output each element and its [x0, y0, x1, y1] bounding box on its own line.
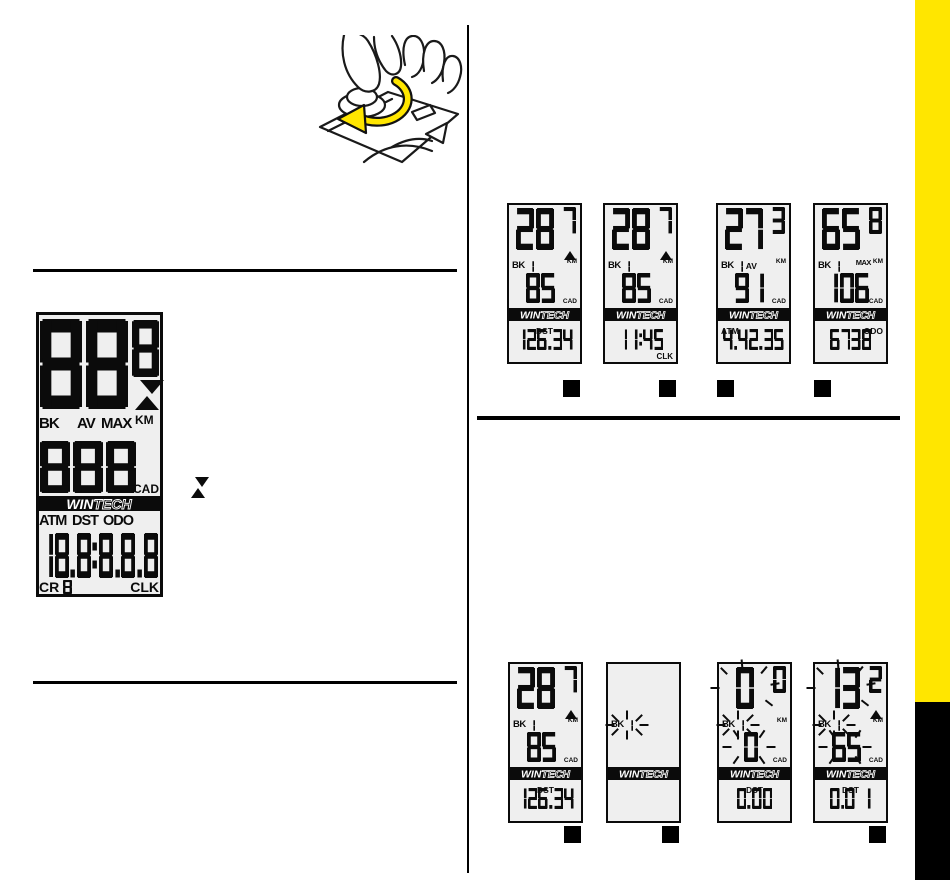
- blink-tick: [767, 746, 776, 748]
- corner-label: CLK: [657, 353, 673, 361]
- cadence-label: CAD: [772, 299, 786, 306]
- cadence-digits: [513, 273, 568, 303]
- finger-3: [443, 56, 462, 93]
- blink-tick: [807, 687, 816, 689]
- unit-label: KM: [663, 259, 673, 266]
- blink-tick: [746, 714, 754, 722]
- brand-win: WIN: [520, 310, 541, 322]
- blink-tick: [626, 731, 628, 740]
- brand-band: WINTECH: [815, 308, 886, 321]
- blink-tick: [717, 724, 726, 726]
- svg-text:WINTECH: WINTECH: [826, 769, 875, 781]
- brand-tech: TECH: [94, 496, 133, 511]
- speed-digits: [40, 319, 128, 409]
- right-rule: [477, 416, 900, 420]
- top-display-2: BKKMCADWINTECHCLK: [603, 203, 678, 364]
- bike-label: BK: [39, 416, 59, 431]
- button-press-square: [563, 380, 580, 397]
- bottom-display-2: BKWINTECH: [606, 662, 681, 823]
- clock-label: CLK: [130, 580, 159, 594]
- svg-text:WINTECH: WINTECH: [616, 310, 665, 322]
- unit-group: KM: [567, 259, 577, 266]
- brand-tech: TECH: [639, 769, 668, 781]
- brand-win: WIN: [616, 310, 637, 322]
- button-press-square: [659, 380, 676, 397]
- toggle-up-triangle: [191, 488, 205, 498]
- bottom-digits: [511, 329, 578, 350]
- blink-tick: [737, 711, 739, 720]
- cadence-label: CAD: [659, 299, 673, 306]
- column-divider: [467, 25, 469, 873]
- brand-win: WIN: [826, 310, 847, 322]
- blink-tick: [723, 746, 732, 748]
- brand-band: WINTECH: [605, 308, 676, 321]
- button-press-square: [869, 826, 886, 843]
- brand-band: WINTECH: [815, 767, 886, 780]
- bottom-display-4: BKKMCADWINTECHDST: [813, 662, 888, 823]
- avg-label: AV: [77, 416, 95, 431]
- finger-1: [403, 36, 424, 77]
- speed-decimal-digit: [564, 666, 577, 693]
- unit-label: KM: [776, 259, 786, 266]
- bike-label: BK: [721, 261, 734, 271]
- left-top-rule: [33, 269, 457, 272]
- blink-tick: [847, 724, 856, 726]
- master-lcd-display: BK AV MAX KM CAD WINTECH ATM DST ODO CR …: [36, 312, 163, 597]
- cadence-digits: [609, 273, 664, 303]
- speed-decimal-digit: [869, 207, 882, 234]
- bike-label: BK: [512, 261, 525, 271]
- blink-tick: [640, 724, 649, 726]
- brand-tech: TECH: [749, 310, 778, 322]
- bike-indicator: BKAV: [721, 260, 757, 272]
- blink-tick: [711, 687, 720, 689]
- cadence-digits: [40, 441, 136, 493]
- brand-tech: TECH: [541, 769, 570, 781]
- blink-tick: [635, 728, 643, 736]
- unit-group: KM: [568, 718, 578, 725]
- unit-group: KM: [873, 718, 883, 725]
- button-press-square: [814, 380, 831, 397]
- bottom-digits: [39, 533, 158, 578]
- svg-text:WINTECH: WINTECH: [520, 310, 569, 322]
- blink-tick: [833, 711, 835, 720]
- bike-indicator: BK: [512, 260, 534, 272]
- button-press-square: [564, 826, 581, 843]
- brand-band: WINTECH: [719, 767, 790, 780]
- page-edge-tab-yellow: [915, 0, 950, 702]
- blink-tick: [863, 746, 872, 748]
- brand-tech: TECH: [540, 310, 569, 322]
- brand-tech: TECH: [846, 310, 875, 322]
- blink-tick: [813, 724, 822, 726]
- speed-digits: [510, 667, 562, 709]
- blink-tick: [626, 711, 628, 720]
- speed-decimal-digit: [773, 666, 786, 693]
- brand-win: WIN: [521, 769, 542, 781]
- blink-tick: [819, 746, 828, 748]
- brand-win: WIN: [66, 496, 94, 511]
- top-display-1: BKKMCADWINTECHDST: [507, 203, 582, 364]
- svg-text:WINTECH: WINTECH: [521, 769, 570, 781]
- bike-label: BK: [608, 261, 621, 271]
- svg-text:WINTECH: WINTECH: [66, 496, 132, 511]
- bottom-digits: [607, 329, 674, 350]
- bottom-display-3: BKKMCADWINTECHDST: [717, 662, 792, 823]
- brand-band: WINTECH: [510, 767, 581, 780]
- unit-label: KM: [135, 414, 154, 426]
- trend-up-icon: [135, 396, 159, 410]
- speed-decimal-digit: [772, 207, 785, 234]
- speed-digits: [605, 208, 657, 250]
- unit-group: MAXKM: [856, 259, 883, 267]
- unit-label: KM: [873, 259, 883, 266]
- bottom-digits: [512, 788, 579, 809]
- max-label: MAX: [856, 259, 871, 267]
- button-press-square: [662, 826, 679, 843]
- speed-digits: [509, 208, 561, 250]
- bike-label: BK: [818, 261, 831, 271]
- crank-digit: [63, 580, 72, 594]
- bottom-display-1: BKKMCADWINTECHDST: [508, 662, 583, 823]
- button-press-square: [717, 380, 734, 397]
- up-down-toggle-icon: [191, 477, 213, 501]
- unit-group: KM: [776, 259, 786, 266]
- toggle-down-triangle: [195, 477, 209, 487]
- bottom-digits: [720, 329, 787, 350]
- unit-label: KM: [567, 259, 577, 266]
- bottom-digits: [721, 788, 788, 809]
- top-display-4: BKMAXKMCADWINTECHODO: [813, 203, 888, 364]
- blink-tick: [837, 660, 840, 669]
- unit-label: KM: [873, 718, 883, 725]
- speed-decimal-digit: [659, 207, 672, 234]
- brand-win: WIN: [729, 310, 750, 322]
- cadence-label: CAD: [563, 299, 577, 306]
- bike-indicator: BK: [608, 260, 630, 272]
- speed-decimal-digit: [869, 666, 882, 693]
- blink-tick: [842, 714, 850, 722]
- brand-tech: TECH: [636, 310, 665, 322]
- brand-band: WINTECH: [509, 308, 580, 321]
- manual-page: BK AV MAX KM CAD WINTECH ATM DST ODO CR …: [0, 0, 950, 886]
- mode-atm-label: ATM: [39, 514, 66, 529]
- brand-win: WIN: [826, 769, 847, 781]
- brand-band: WINTECH: [608, 767, 679, 780]
- brand-band: WINTECH: [39, 496, 160, 511]
- avg-label: AV: [746, 262, 757, 271]
- unit-label: KM: [568, 718, 578, 725]
- brand-tech: TECH: [750, 769, 779, 781]
- blink-tick: [751, 724, 760, 726]
- speed-decimal-digit: [563, 207, 576, 234]
- hands-rotating-cap-illustration: [308, 35, 464, 169]
- speed-decimal-digit: [132, 320, 159, 377]
- svg-text:WINTECH: WINTECH: [730, 769, 779, 781]
- cadence-label: CAD: [869, 299, 883, 306]
- bike-label: BK: [513, 720, 526, 730]
- finger-2: [423, 41, 444, 83]
- left-bottom-rule: [33, 681, 457, 684]
- svg-text:WINTECH: WINTECH: [826, 310, 875, 322]
- cadence-digits: [819, 273, 874, 303]
- cadence-label: CAD: [773, 758, 787, 765]
- brand-band: WINTECH: [718, 308, 789, 321]
- blink-tick: [635, 714, 643, 722]
- mode-dst-label: DST: [72, 514, 98, 529]
- bottom-digits: [817, 788, 884, 809]
- brand-tech: TECH: [846, 769, 875, 781]
- max-label: MAX: [101, 416, 131, 431]
- page-edge-tab-black: [915, 702, 950, 880]
- unit-group: KM: [663, 259, 673, 266]
- top-display-3: BKAVKMCADWINTECHATM: [716, 203, 791, 364]
- svg-text:WINTECH: WINTECH: [729, 310, 778, 322]
- blink-tick: [741, 660, 744, 669]
- cadence-digits: [514, 732, 569, 762]
- cadence-label: CAD: [133, 483, 159, 495]
- bike-indicator: BK: [818, 260, 840, 272]
- crank-label: CR: [39, 580, 59, 594]
- brand-win: WIN: [730, 769, 751, 781]
- speed-digits: [718, 208, 770, 250]
- svg-text:WINTECH: WINTECH: [619, 769, 668, 781]
- unit-label: KM: [777, 718, 787, 725]
- cadence-label: CAD: [869, 758, 883, 765]
- bike-indicator: BK: [513, 719, 535, 731]
- speed-digits: [815, 208, 867, 250]
- cadence-digits: [722, 273, 777, 303]
- trend-down-icon: [140, 380, 164, 394]
- bottom-digits: [817, 329, 884, 350]
- blink-tick: [606, 724, 615, 726]
- brand-win: WIN: [619, 769, 640, 781]
- cadence-label: CAD: [564, 758, 578, 765]
- mode-odo-label: ODO: [103, 514, 133, 529]
- unit-group: KM: [777, 718, 787, 725]
